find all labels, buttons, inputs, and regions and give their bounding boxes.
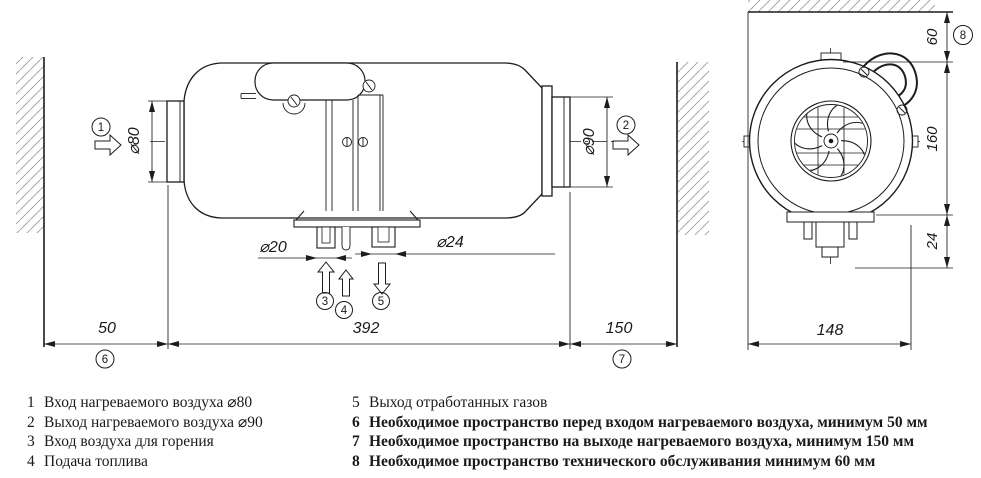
- legend-item-5: 5 Выход отработанных газов: [352, 393, 981, 413]
- connector-block: [816, 222, 844, 247]
- callout-number: 3: [322, 296, 328, 308]
- screw-icon: [288, 95, 300, 107]
- technical-drawing: ⌀80 ⌀90 ⌀20 ⌀24 50 392: [0, 0, 981, 392]
- callout-outlet-clearance: 7: [613, 350, 631, 368]
- dim-combustion-air-stub: ⌀20: [258, 239, 352, 261]
- legend-item-text: Вход нагреваемого воздуха ⌀80: [44, 393, 252, 413]
- callout-fuel-supply: 4: [336, 270, 354, 319]
- dim-label: 150: [606, 320, 633, 337]
- dim-label: ⌀24: [436, 234, 464, 251]
- callout-outlet-air: 2: [613, 116, 639, 155]
- legend-item-text: Необходимое пространство на выходе нагре…: [369, 432, 914, 452]
- legend-item-number: 8: [352, 452, 369, 472]
- legend-item-3: 3 Вход воздуха для горения: [27, 432, 347, 452]
- flow-right-arrow-icon: [95, 135, 121, 155]
- callout-number: 1: [98, 122, 104, 134]
- flow-up-arrow-icon: [318, 262, 334, 293]
- end-view: [742, 0, 953, 264]
- legend-item-4: 4 Подача топлива: [27, 452, 347, 472]
- outlet-stub: [552, 97, 570, 187]
- callout-number: 2: [623, 120, 629, 132]
- legend-column-left: 1 Вход нагреваемого воздуха ⌀80 2 Выход …: [27, 393, 347, 471]
- legend-item-number: 4: [27, 452, 44, 472]
- callout-number: 8: [960, 30, 966, 42]
- legend-item-number: 5: [352, 393, 369, 413]
- legend-item-number: 2: [27, 413, 44, 433]
- dim-label: ⌀90: [581, 128, 598, 156]
- legend-item-text: Подача топлива: [44, 452, 148, 472]
- heater-installation-drawing-page: ⌀80 ⌀90 ⌀20 ⌀24 50 392: [0, 0, 981, 478]
- legend-item-1: 1 Вход нагреваемого воздуха ⌀80: [27, 393, 347, 413]
- right-wall: [677, 62, 709, 347]
- flow-down-arrow-icon: [374, 263, 390, 294]
- dim-label: 392: [353, 320, 380, 337]
- flow-right-arrow-icon: [613, 135, 639, 155]
- side-view: [16, 57, 709, 347]
- dim-label: 50: [98, 320, 116, 337]
- dim-label: 24: [924, 233, 941, 251]
- fuel-pipe: [342, 227, 350, 250]
- legend-item-text: Выход нагреваемого воздуха ⌀90: [44, 413, 263, 433]
- legend-item-2: 2 Выход нагреваемого воздуха ⌀90: [27, 413, 347, 433]
- end-flange: [787, 212, 874, 257]
- callout-service-clearance: 8: [954, 26, 973, 45]
- stud: [849, 222, 857, 239]
- dim-label: 160: [924, 126, 941, 152]
- legend-item-6: 6 Необходимое пространство перед входом …: [352, 413, 981, 433]
- outlet-ring: [542, 86, 552, 196]
- callout-inlet-air: 1: [92, 118, 121, 155]
- legend-column-right: 5 Выход отработанных газов 6 Необходимое…: [352, 393, 981, 471]
- legend-item-number: 6: [352, 413, 369, 433]
- dim-label: 60: [924, 28, 941, 45]
- callout-inlet-clearance: 6: [96, 350, 114, 368]
- legend-item-text: Вход воздуха для горения: [44, 432, 214, 452]
- inlet-stub: [167, 101, 184, 182]
- callout-number: 7: [619, 354, 625, 366]
- left-wall: [16, 57, 44, 347]
- legend-item-7: 7 Необходимое пространство на выходе наг…: [352, 432, 981, 452]
- callout-exhaust-gas: 5: [373, 263, 391, 310]
- callout-combustion-air: 3: [317, 262, 335, 310]
- legend-item-number: 7: [352, 432, 369, 452]
- callout-number: 5: [378, 296, 384, 308]
- legend-item-text: Выход отработанных газов: [369, 393, 547, 413]
- legend-item-number: 1: [27, 393, 44, 413]
- stud: [804, 222, 812, 239]
- dim-label: ⌀80: [126, 127, 143, 155]
- dim-label: ⌀20: [259, 239, 287, 256]
- legend-item-number: 3: [27, 432, 44, 452]
- legend-item-text: Необходимое пространство перед входом на…: [369, 413, 928, 433]
- screw-icon: [363, 80, 375, 92]
- dim-label: 148: [817, 322, 844, 339]
- flow-up-arrow-icon: [339, 270, 353, 296]
- legend-item-text: Необходимое пространство технического об…: [369, 452, 875, 472]
- callout-number: 4: [341, 305, 348, 317]
- legend-item-8: 8 Необходимое пространство технического …: [352, 452, 981, 472]
- callout-number: 6: [102, 354, 108, 366]
- ceiling: [748, 0, 953, 12]
